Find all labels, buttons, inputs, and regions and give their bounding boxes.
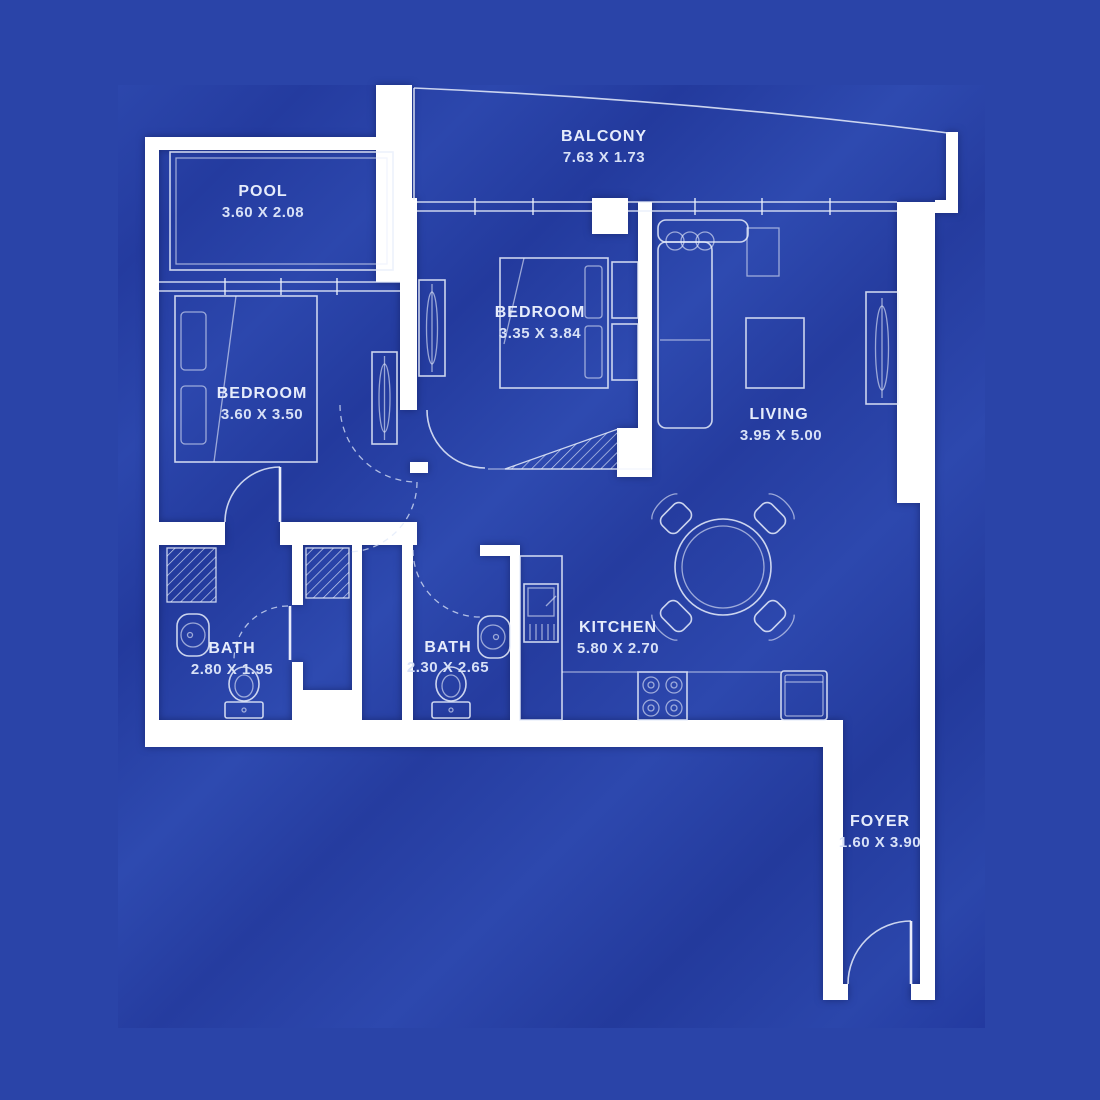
bedroom-left-label: BEDROOM (217, 385, 308, 402)
bedroom-center-label: BEDROOM (495, 304, 586, 321)
bedroom-left-dims: 3.60 X 3.50 (221, 406, 303, 423)
balcony-label: BALCONY (561, 128, 647, 145)
foyer-label: FOYER (850, 813, 910, 830)
floor-plan-page: BALCONY 7.63 X 1.73 POOL 3.60 X 2.08 BED… (0, 0, 1100, 1100)
foyer-dims: 1.60 X 3.90 (839, 834, 921, 851)
duct-hatch-icon (306, 548, 349, 598)
balcony-dims: 7.63 X 1.73 (563, 149, 645, 166)
bath-center-label: BATH (424, 639, 471, 656)
bath-center-dims: 2.30 X 2.65 (407, 659, 489, 676)
floor-plan-svg: BALCONY 7.63 X 1.73 POOL 3.60 X 2.08 BED… (0, 0, 1100, 1100)
living-label: LIVING (749, 406, 808, 423)
bedroom-center-dims: 3.35 X 3.84 (499, 325, 581, 342)
pool-label: POOL (238, 183, 287, 200)
bath-left-label: BATH (208, 640, 255, 657)
living-dims: 3.95 X 5.00 (740, 427, 822, 444)
bath-left-dims: 2.80 X 1.95 (191, 661, 273, 678)
kitchen-label: KITCHEN (579, 619, 657, 636)
shower-hatch-icon (167, 548, 216, 602)
pool-dims: 3.60 X 2.08 (222, 204, 304, 221)
kitchen-dims: 5.80 X 2.70 (577, 640, 659, 657)
